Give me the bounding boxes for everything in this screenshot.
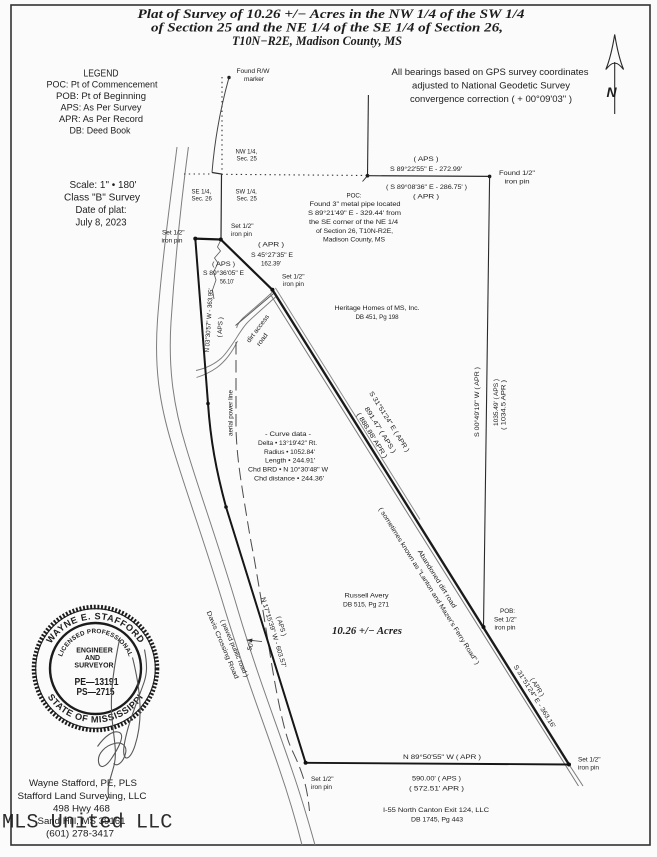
svg-text:iron pin: iron pin [162,238,183,245]
svg-text:POC: Pt of Commencement: POC: Pt of Commencement [47,80,158,90]
svg-text:10.26 +/− Acres: 10.26 +/− Acres [332,626,402,637]
svg-text:Class "B" Survey: Class "B" Survey [64,193,141,204]
svg-text:( APR ): ( APR ) [258,242,284,249]
svg-text:DB: Deed Book: DB: Deed Book [70,126,131,136]
svg-text:Found R/W: Found R/W [237,68,271,75]
svg-text:Russell Avery: Russell Avery [345,593,390,600]
svg-text:iron pin: iron pin [578,765,599,772]
svg-text:S 45°27'35" E: S 45°27'35" E [251,251,294,259]
svg-text:Set 1/2": Set 1/2" [311,776,334,783]
svg-text:adjusted to National Geodetic: adjusted to National Geodetic Survey [412,81,571,91]
svg-text:( APS ): ( APS ) [414,156,439,163]
svg-text:Found 1/2": Found 1/2" [499,170,536,177]
svg-text:convergence correction ( + 00°: convergence correction ( + 00°09'03" ) [410,94,572,104]
svg-text:Heritage Homes of MS, Inc.: Heritage Homes of MS, Inc. [335,305,420,312]
svg-text:( 1034.5 APR ): ( 1034.5 APR ) [501,380,508,430]
svg-text:DB 515, Pg 271: DB 515, Pg 271 [343,602,389,609]
svg-text:( APR ): ( APR ) [413,194,439,201]
svg-text:162.39': 162.39' [261,261,281,268]
svg-text:Madison County, MS: Madison County, MS [323,237,386,244]
svg-text:July 8, 2023: July 8, 2023 [76,218,127,229]
svg-text:Sec. 25: Sec. 25 [237,197,258,203]
svg-text:Chd BRD • N 10°30'48" W: Chd BRD • N 10°30'48" W [248,466,329,474]
svg-text:iron pin: iron pin [311,784,332,791]
svg-text:Scale: 1" • 180': Scale: 1" • 180' [70,180,137,191]
svg-text:Set 1/2": Set 1/2" [162,230,185,237]
svg-text:Chd distance • 244.36': Chd distance • 244.36' [254,476,324,483]
svg-text:S 89°21'49" E - 329.44' from: S 89°21'49" E - 329.44' from [308,209,401,217]
svg-text:Delta • 13°19'42" Rt.: Delta • 13°19'42" Rt. [258,439,317,447]
svg-text:APR: As Per Record: APR: As Per Record [59,114,143,124]
svg-text:T10N−R2E, Madison County, MS: T10N−R2E, Madison County, MS [232,34,402,48]
svg-text:590.00' ( APS ): 590.00' ( APS ) [412,776,461,783]
svg-text:POB: Pt of Beginning: POB: Pt of Beginning [56,91,146,101]
svg-text:( APS ): ( APS ) [217,317,225,338]
svg-text:Date of plat:: Date of plat: [76,205,127,216]
svg-text:N 89°50'55" W ( APR ): N 89°50'55" W ( APR ) [403,753,481,761]
svg-text:iron pin: iron pin [495,625,516,632]
svg-text:marker: marker [244,76,265,83]
svg-text:All bearings based on GPS surv: All bearings based on GPS survey coordin… [392,67,590,77]
svg-text:- Curve data -: - Curve data - [265,431,311,438]
svg-text:Sec. 25: Sec. 25 [237,157,258,163]
svg-text:the SE corner of the NE 1/4: the SE corner of the NE 1/4 [309,219,398,226]
svg-text:SW 1/4,: SW 1/4, [236,190,258,196]
svg-text:DB 451, Pg 198: DB 451, Pg 198 [356,314,399,321]
svg-text:POC:: POC: [347,193,362,200]
svg-text:Set 1/2": Set 1/2" [282,274,305,281]
svg-text:S 00°49'19" W ( APR ): S 00°49'19" W ( APR ) [473,367,481,437]
svg-text:iron pin: iron pin [283,281,304,288]
svg-text:aerial power line: aerial power line [229,389,235,436]
svg-text:( APS ): ( APS ) [212,261,235,268]
svg-text:( 572.51' APR ): ( 572.51' APR ) [409,786,464,793]
svg-text:Length • 244.91': Length • 244.91' [265,458,315,465]
svg-text:S 89°36'05" E: S 89°36'05" E [203,269,245,277]
svg-text:Stafford Land Surveying, LLC: Stafford Land Surveying, LLC [18,791,148,801]
svg-text:iron pin: iron pin [231,231,252,238]
svg-text:( S 89°08'36" E - 286.75' ): ( S 89°08'36" E - 286.75' ) [386,183,467,191]
svg-text:Plat of Survey of 10.26 +/− Ac: Plat of Survey of 10.26 +/− Acres in the… [138,7,525,21]
svg-text:PS—2715: PS—2715 [77,687,115,698]
svg-text:POB:: POB: [500,608,515,615]
svg-text:Sec. 26: Sec. 26 [192,197,213,203]
svg-text:Wayne Stafford, PE, PLS: Wayne Stafford, PE, PLS [29,778,137,788]
svg-text:DB 1745, Pg 443: DB 1745, Pg 443 [411,817,463,824]
svg-text:NW 1/4,: NW 1/4, [236,150,258,156]
svg-text:iron pin: iron pin [505,179,531,186]
svg-text:I-55 North Canton Exit 124, LL: I-55 North Canton Exit 124, LLC [383,807,489,814]
svg-text:Set 1/2": Set 1/2" [494,617,517,624]
svg-text:MLS United LLC: MLS United LLC [2,812,172,835]
svg-text:LEGEND: LEGEND [84,69,119,80]
svg-text:of Section 26, T10N-R2E,: of Section 26, T10N-R2E, [316,228,393,235]
svg-text:S 89°22'55" E - 272.99': S 89°22'55" E - 272.99' [390,165,462,173]
svg-text:Set 1/2": Set 1/2" [578,757,601,764]
svg-text:AND: AND [85,655,100,662]
svg-text:56.10': 56.10' [220,279,234,286]
svg-text:SE 1/4,: SE 1/4, [192,190,212,196]
svg-text:N: N [607,84,618,100]
svg-text:Set 1/2": Set 1/2" [231,223,254,230]
svg-text:APS: As Per Survey: APS: As Per Survey [61,103,142,113]
svg-text:1035.49' ( APS ): 1035.49' ( APS ) [493,379,500,426]
svg-text:ENGINEER: ENGINEER [76,648,113,655]
svg-text:of Section 25 and the NE 1/4 o: of Section 25 and the NE 1/4 of the SE 1… [151,21,503,35]
svg-text:Radius • 1052.84': Radius • 1052.84' [264,449,315,456]
svg-text:SURVEYOR: SURVEYOR [74,663,113,670]
svg-text:Found 3" metal pipe located: Found 3" metal pipe located [310,201,401,208]
